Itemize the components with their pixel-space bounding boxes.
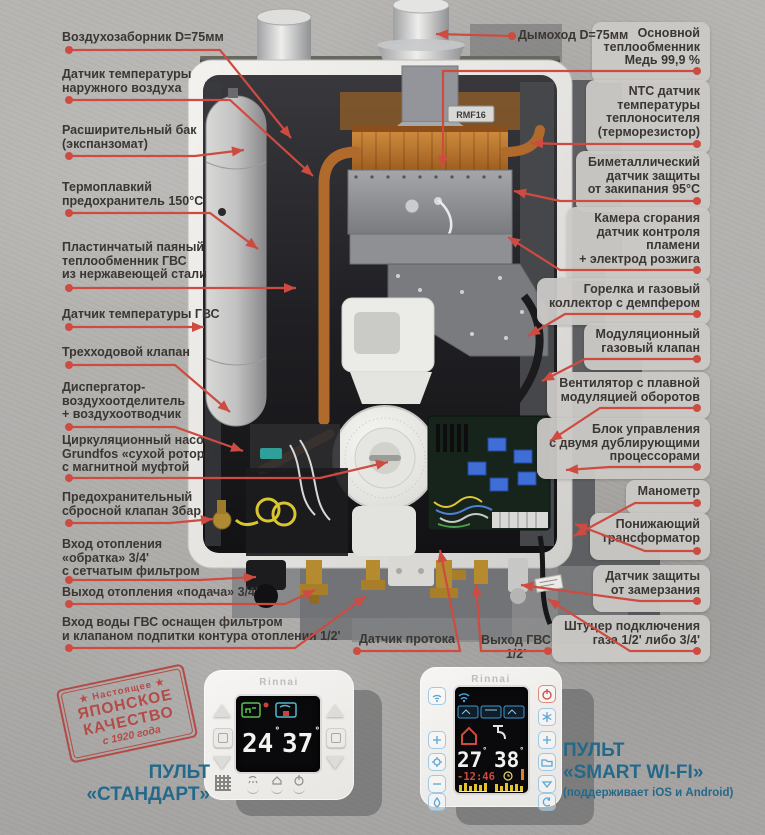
component-label-left-0: Воздухозаборник D=75мм [62,31,224,45]
infographic-rinnai-boiler: RMF16 [0,0,765,835]
component-label-left-1: Датчик температуры наружного воздуха [62,68,191,95]
component-label-right-9: Понижающий трансформатор [590,513,710,560]
component-label-right-3: Камера сгорания датчик контроля пламени … [567,207,710,281]
component-label-left-6: Трехходовой клапан [62,346,190,360]
component-label-left-12: Вход воды ГВС оснащен фильтром и клапано… [62,616,341,643]
component-label-right-11: Штуцер подключения газа 1/2' либо 3/4' [552,615,710,662]
component-label-left-9: Предохранительный сбросной клапан 3бар [62,491,201,518]
component-label-left-2: Расширительный бак (экспанзомат) [62,124,197,151]
component-label-right-2: Биметаллический датчик защиты от закипан… [576,151,710,212]
component-label-right-10: Датчик защиты от замерзания [593,565,710,612]
component-label-right-1: NTC датчик температуры теплоносителя (те… [586,80,710,154]
component-label-flue: Дымоход D=75мм [518,29,628,43]
component-label-left-11: Выход отопления «подача» 3/4' [62,586,258,600]
component-label-left-3: Термоплавкий предохранитель 150°С [62,181,203,208]
component-label-bottom-0: Датчик протока [352,633,462,647]
component-label-right-8: Манометр [626,480,710,514]
component-label-left-4: Пластинчатый паяный теплообменник ГВС из… [62,241,207,282]
component-label-left-5: Датчик температуры ГВС [62,308,220,322]
component-label-left-8: Циркуляционный насос Grundfos «сухой рот… [62,434,211,475]
component-label-right-4: Горелка и газовый коллектор с демпфером [537,278,710,325]
component-label-right-7: Блок управления с двумя дублирующими про… [537,418,710,479]
component-label-left-7: Диспергатор- воздухоотделитель + воздухо… [62,381,185,422]
component-label-right-6: Вентилятор с плавной модуляцией оборотов [547,372,710,419]
component-label-bottom-1: Выход ГВС 1/2' [474,634,558,661]
component-label-right-5: Модуляционный газовый клапан [584,323,710,370]
callout-labels: Воздухозаборник D=75ммДатчик температуры… [0,0,765,835]
component-label-left-10: Вход отопления «обратка» 3/4' с сетчатым… [62,538,200,579]
